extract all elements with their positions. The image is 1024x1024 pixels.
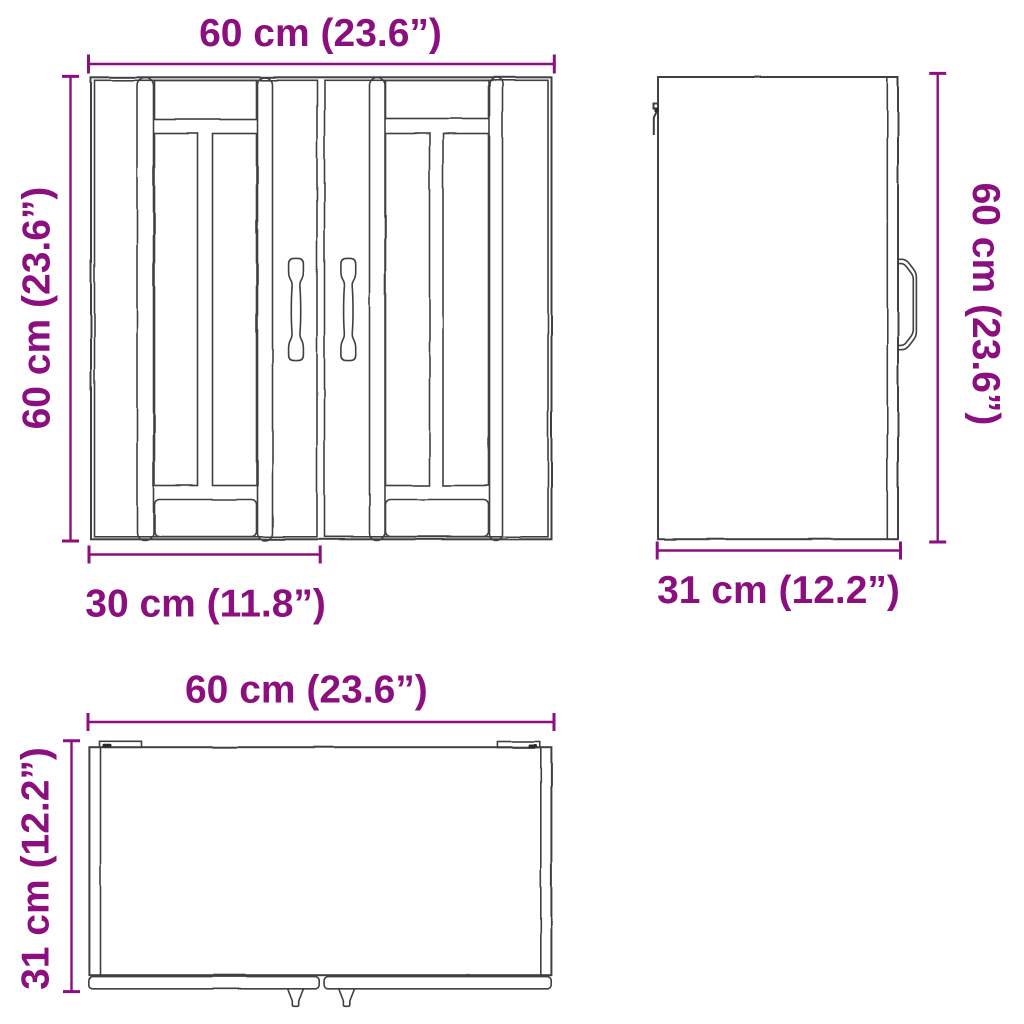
svg-text:31 cm (12.2”): 31 cm (12.2”) <box>657 569 900 612</box>
svg-text:31 cm (12.2”): 31 cm (12.2”) <box>15 747 58 990</box>
svg-text:60 cm (23.6”): 60 cm (23.6”) <box>964 183 1007 426</box>
svg-text:60 cm (23.6”): 60 cm (23.6”) <box>15 187 58 430</box>
svg-text:60 cm (23.6”): 60 cm (23.6”) <box>185 669 428 712</box>
svg-text:60 cm (23.6”): 60 cm (23.6”) <box>199 12 442 55</box>
svg-text:30 cm (11.8”): 30 cm (11.8”) <box>85 582 326 625</box>
